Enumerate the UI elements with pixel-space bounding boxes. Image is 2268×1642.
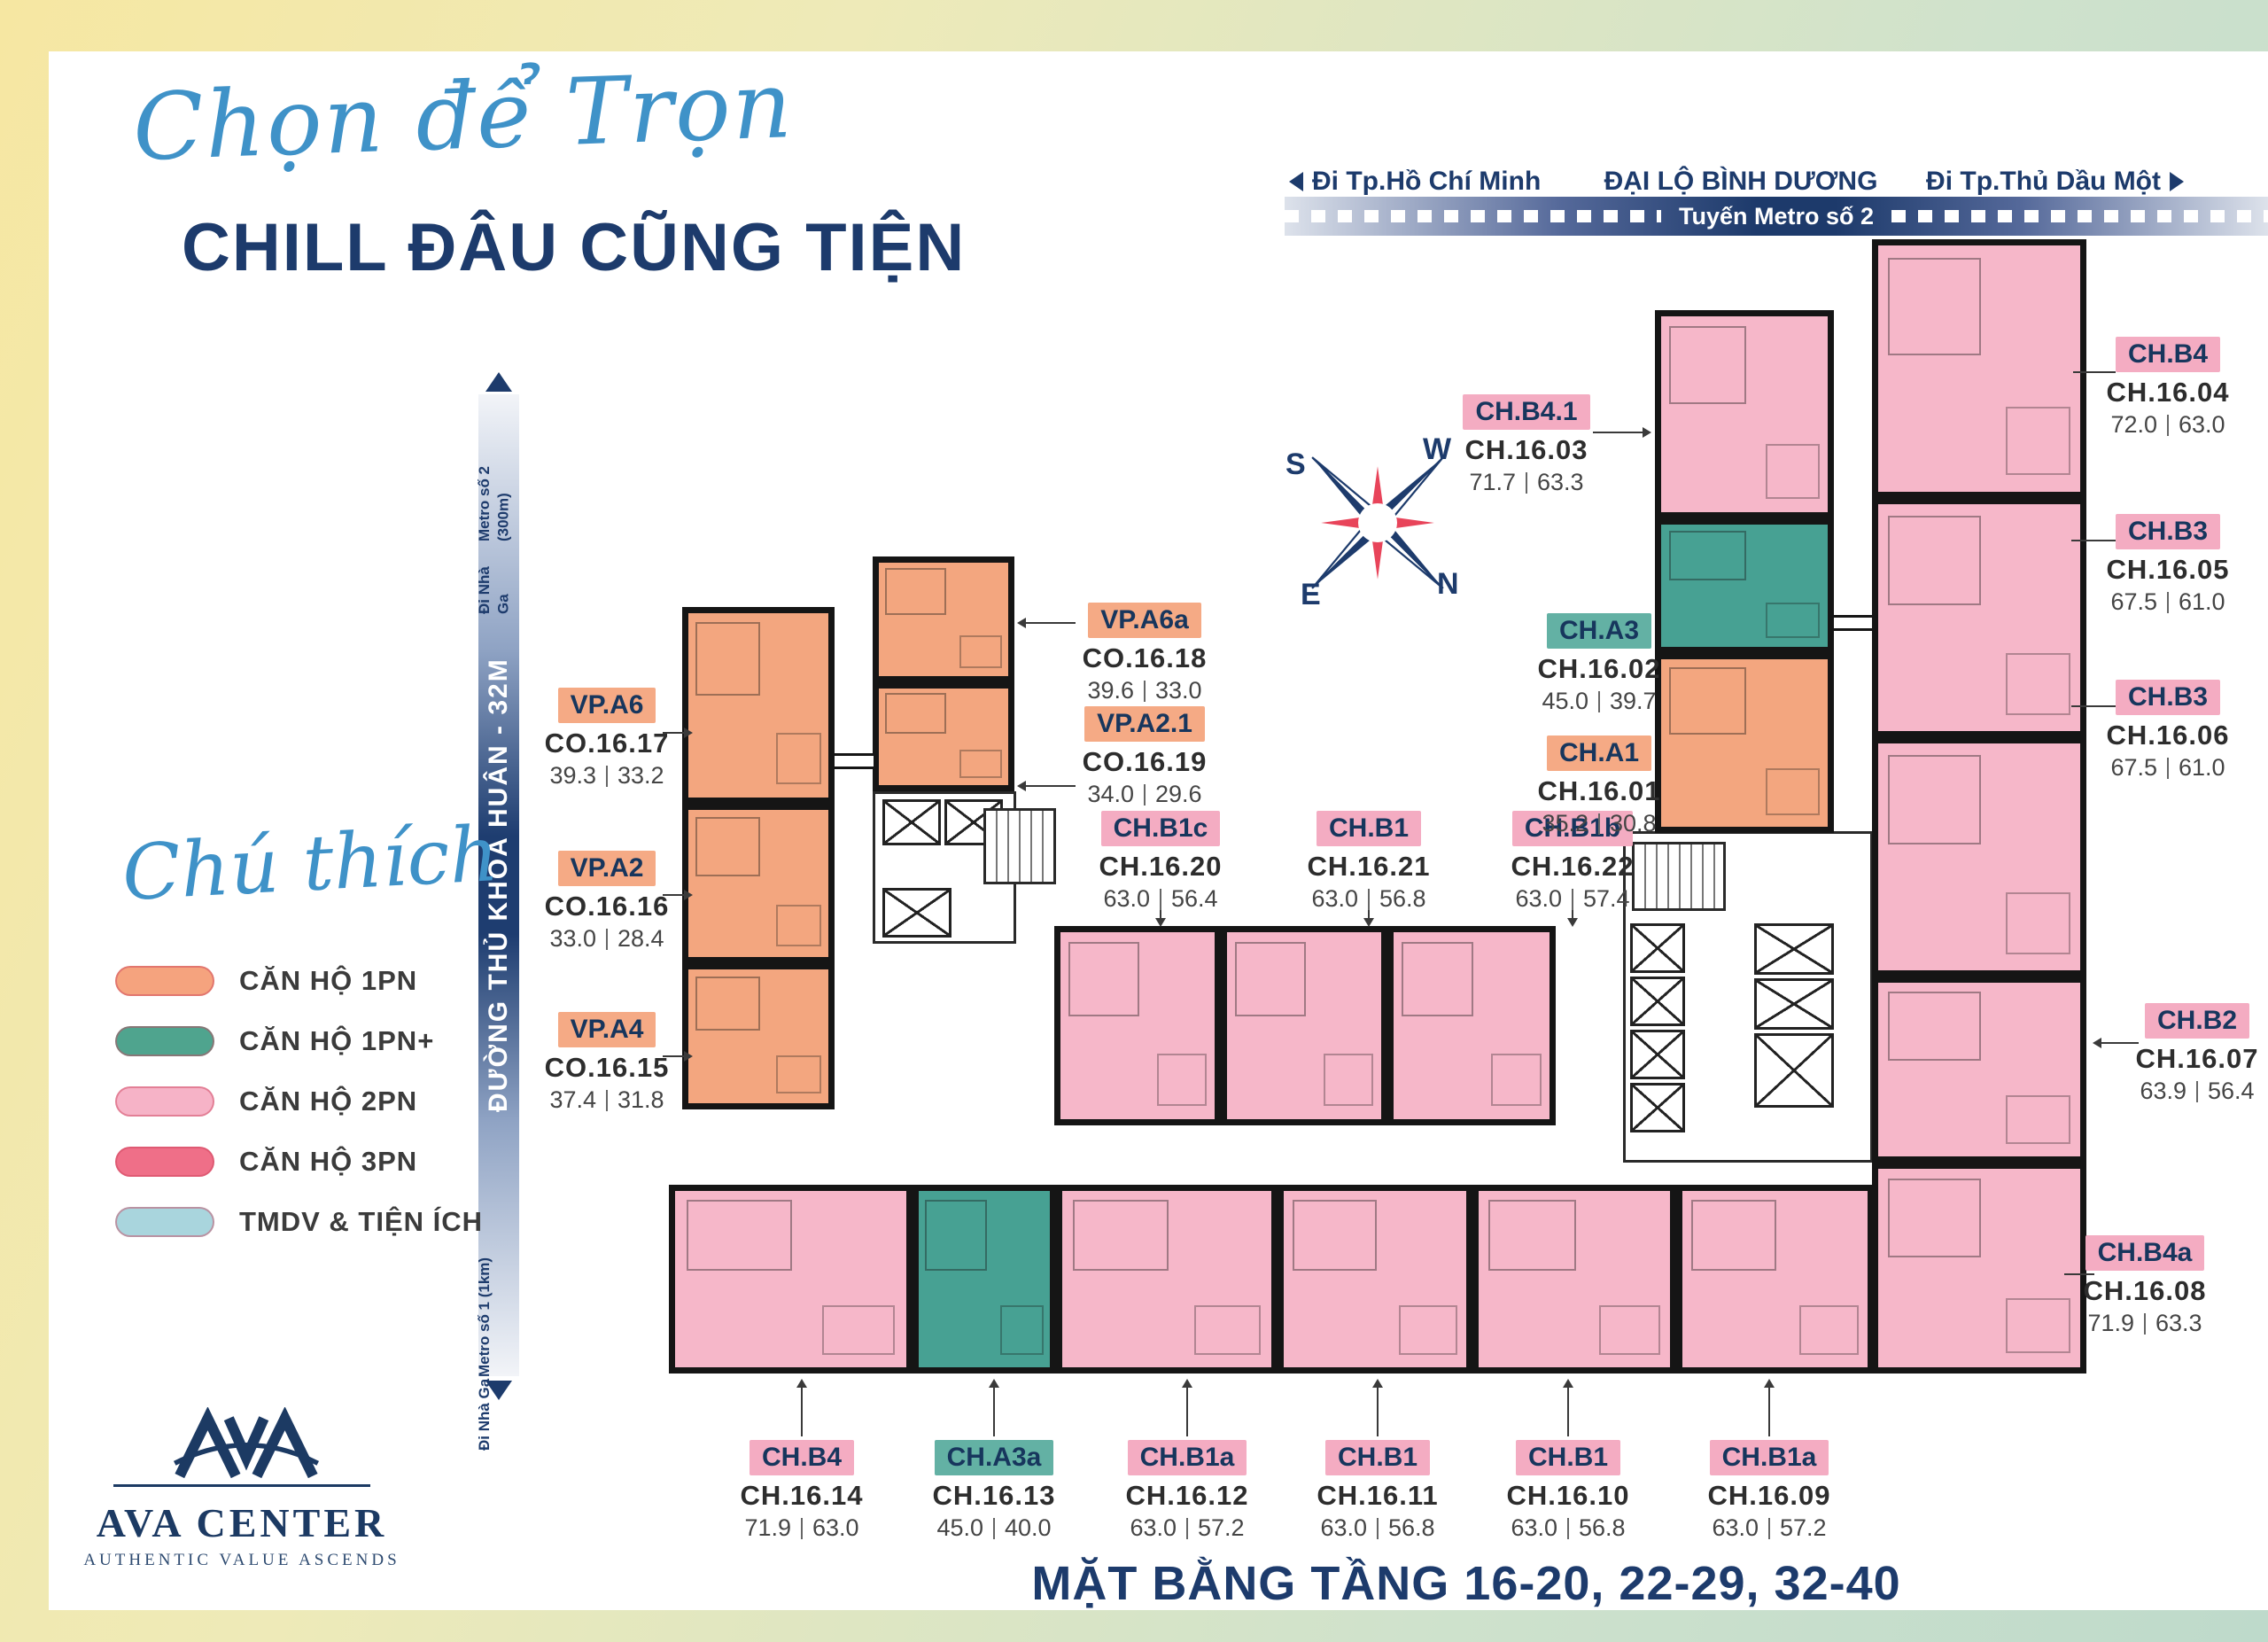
unit-callout: CH.B4CH.16.1471.963.0 bbox=[726, 1440, 877, 1542]
unit-tag: VP.A2 bbox=[558, 851, 656, 886]
unit-tag: CH.B4 bbox=[750, 1440, 854, 1475]
compass-west: W bbox=[1423, 432, 1451, 467]
unit-code: CO.16.16 bbox=[532, 891, 682, 922]
unit-tag: CH.B1 bbox=[1516, 1440, 1620, 1475]
unit-callout: CH.B1CH.16.2163.056.8 bbox=[1293, 811, 1444, 913]
street-dest-bottom: Đi Nhà Ga Metro số 1 (1km) bbox=[475, 1251, 528, 1451]
area-divider bbox=[1567, 1518, 1569, 1539]
unit-code: CH.16.12 bbox=[1112, 1480, 1262, 1512]
legend-label: CĂN HỘ 1PN+ bbox=[239, 1025, 434, 1057]
logo-divider bbox=[113, 1484, 370, 1487]
unit-area-gross: 63.0 bbox=[1515, 885, 1562, 913]
unit-block-co1615 bbox=[682, 963, 835, 1109]
script-title: Chọn để Trọn bbox=[131, 51, 795, 182]
unit-area-gross: 72.0 bbox=[2110, 411, 2157, 439]
unit-area-gross: 39.6 bbox=[1087, 677, 1134, 704]
unit-area-net: 63.3 bbox=[2155, 1310, 2202, 1337]
unit-block-ch1610 bbox=[1472, 1185, 1676, 1374]
area-divider bbox=[606, 929, 608, 950]
unit-code: CH.16.03 bbox=[1451, 434, 1602, 466]
road-direction-right-label: Đi Tp.Thủ Dầu Một bbox=[1926, 167, 2161, 196]
elevator-icon bbox=[882, 888, 951, 938]
unit-tag: CH.A3a bbox=[935, 1440, 1054, 1475]
unit-tag: CH.B4.1 bbox=[1463, 394, 1589, 430]
area-divider bbox=[606, 1090, 608, 1111]
unit-area-net: 63.0 bbox=[2179, 411, 2225, 439]
unit-area-net: 61.0 bbox=[2179, 588, 2225, 616]
callout-arrow bbox=[1377, 1388, 1379, 1436]
unit-block-co1616 bbox=[682, 804, 835, 963]
unit-tag: CH.B1 bbox=[1325, 1440, 1430, 1475]
compass-east: E bbox=[1301, 578, 1321, 612]
legend-swatch-2pn bbox=[115, 1086, 214, 1117]
area-divider bbox=[1598, 813, 1600, 835]
unit-callout: CH.A3CH.16.0245.039.7 bbox=[1524, 613, 1674, 715]
unit-code: CH.16.13 bbox=[919, 1480, 1069, 1512]
unit-block-ch1602 bbox=[1655, 518, 1834, 653]
unit-callout: CH.B1cCH.16.2063.056.4 bbox=[1085, 811, 1236, 913]
area-divider bbox=[1377, 1518, 1379, 1539]
unit-area-gross: 37.4 bbox=[549, 1086, 596, 1114]
unit-callout: VP.A2.1CO.16.1934.029.6 bbox=[1069, 706, 1220, 808]
legend-item: CĂN HỘ 1PN bbox=[115, 966, 417, 996]
unit-code: CO.16.15 bbox=[532, 1052, 682, 1084]
unit-area: 63.056.4 bbox=[1085, 885, 1236, 913]
unit-block-ch1609 bbox=[1676, 1185, 1874, 1374]
legend-label: CĂN HỘ 3PN bbox=[239, 1146, 417, 1178]
unit-area-net: 30.8 bbox=[1610, 810, 1657, 837]
arrow-down-icon bbox=[485, 1381, 512, 1400]
unit-callout: VP.A6CO.16.1739.333.2 bbox=[532, 688, 682, 790]
unit-area: 63.056.8 bbox=[1493, 1514, 1643, 1542]
elevator-icon bbox=[1630, 923, 1685, 973]
unit-area-net: 56.4 bbox=[1171, 885, 1218, 913]
unit-area: 39.333.2 bbox=[532, 762, 682, 790]
unit-area-gross: 71.9 bbox=[744, 1514, 791, 1542]
unit-block-ch1622 bbox=[1387, 926, 1556, 1125]
area-divider bbox=[1186, 1518, 1188, 1539]
unit-block-ch1605 bbox=[1872, 498, 2086, 737]
unit-callout: CH.B3CH.16.0667.561.0 bbox=[2093, 680, 2243, 782]
unit-area: 63.056.8 bbox=[1302, 1514, 1453, 1542]
elevator-icon bbox=[1630, 1083, 1685, 1132]
unit-callout: CH.B4.1CH.16.0371.763.3 bbox=[1451, 394, 1602, 496]
unit-tag: CH.B1a bbox=[1128, 1440, 1247, 1475]
unit-area-net: 56.8 bbox=[1579, 1514, 1626, 1542]
area-divider bbox=[801, 1518, 803, 1539]
unit-area-net: 39.7 bbox=[1610, 688, 1657, 715]
unit-tag: CH.A1 bbox=[1547, 735, 1651, 771]
unit-area: 45.039.7 bbox=[1524, 688, 1674, 715]
unit-area-gross: 63.0 bbox=[1320, 1514, 1367, 1542]
metro-dashes bbox=[1285, 210, 1661, 222]
unit-tag: CH.B4 bbox=[2116, 337, 2220, 372]
unit-tag: CH.B1a bbox=[1710, 1440, 1829, 1475]
unit-area-net: 63.3 bbox=[1537, 469, 1584, 496]
unit-area-gross: 63.0 bbox=[1511, 1514, 1557, 1542]
unit-block-co1617 bbox=[682, 607, 835, 804]
area-divider bbox=[2196, 1081, 2198, 1102]
unit-area-gross: 45.0 bbox=[936, 1514, 983, 1542]
area-divider bbox=[2144, 1313, 2146, 1335]
callout-arrow bbox=[1026, 622, 1076, 624]
unit-area-gross: 71.7 bbox=[1469, 469, 1516, 496]
unit-tag: CH.B3 bbox=[2116, 514, 2220, 549]
unit-block-ch1604 bbox=[1872, 239, 2086, 498]
legend-label: CĂN HỘ 2PN bbox=[239, 1086, 417, 1117]
unit-code: CO.16.19 bbox=[1069, 746, 1220, 778]
bridge-link bbox=[1834, 615, 1873, 631]
callout-arrow bbox=[993, 1388, 995, 1436]
compass-south: S bbox=[1285, 447, 1306, 482]
unit-code: CH.16.02 bbox=[1524, 653, 1674, 685]
unit-area-net: 33.2 bbox=[617, 762, 664, 790]
unit-area-gross: 63.9 bbox=[2140, 1078, 2186, 1105]
area-divider bbox=[1144, 681, 1146, 702]
area-divider bbox=[1598, 691, 1600, 712]
legend-item: CĂN HỘ 2PN bbox=[115, 1086, 417, 1117]
road-direction-left-label: Đi Tp.Hồ Chí Minh bbox=[1312, 167, 1541, 196]
unit-code: CH.16.10 bbox=[1493, 1480, 1643, 1512]
unit-code: CH.16.21 bbox=[1293, 851, 1444, 883]
elevator-icon bbox=[1754, 978, 1834, 1030]
logo-tagline: AUTHENTIC VALUE ASCENDS bbox=[83, 1551, 400, 1570]
elevator-icon bbox=[1754, 923, 1834, 975]
unit-area-gross: 33.0 bbox=[549, 925, 596, 953]
road-direction-right: Đi Tp.Thủ Dầu Một bbox=[1926, 167, 2184, 197]
elevator-icon bbox=[1630, 977, 1685, 1026]
unit-block-co1618 bbox=[873, 556, 1014, 682]
callout-arrow bbox=[1186, 1388, 1188, 1436]
unit-block-co1619 bbox=[873, 682, 1014, 791]
unit-area: 72.063.0 bbox=[2093, 411, 2243, 439]
unit-code: CH.16.22 bbox=[1497, 851, 1648, 883]
floorplan-title: MẶT BẰNG TẦNG 16-20, 22-29, 32-40 bbox=[1031, 1556, 1900, 1611]
unit-callout: CH.A1CH.16.0135.230.8 bbox=[1524, 735, 1674, 837]
unit-tag: CH.B1 bbox=[1317, 811, 1421, 846]
unit-area-gross: 39.3 bbox=[549, 762, 596, 790]
metro-dashes bbox=[1891, 210, 2268, 222]
unit-callout: CH.B1aCH.16.0963.057.2 bbox=[1694, 1440, 1845, 1542]
unit-area-net: 56.8 bbox=[1379, 885, 1426, 913]
unit-area: 34.029.6 bbox=[1069, 781, 1220, 808]
unit-area: 71.963.3 bbox=[2070, 1310, 2220, 1337]
unit-tag: VP.A4 bbox=[558, 1012, 656, 1047]
legend-swatch-1pn bbox=[115, 966, 214, 996]
unit-callout: CH.B4CH.16.0472.063.0 bbox=[2093, 337, 2243, 439]
unit-code: CH.16.01 bbox=[1524, 775, 1674, 807]
unit-area-net: 31.8 bbox=[617, 1086, 664, 1114]
unit-area-net: 63.0 bbox=[812, 1514, 859, 1542]
unit-code: CO.16.17 bbox=[532, 728, 682, 759]
arrow-up-icon bbox=[485, 372, 512, 392]
unit-area-net: 57.4 bbox=[1583, 885, 1630, 913]
logo-name: AVA CENTER bbox=[97, 1499, 387, 1546]
unit-area: 33.028.4 bbox=[532, 925, 682, 953]
stairs-icon bbox=[983, 808, 1056, 884]
callout-arrow bbox=[801, 1388, 803, 1436]
unit-block-ch1607 bbox=[1872, 977, 2086, 1163]
unit-code: CH.16.20 bbox=[1085, 851, 1236, 883]
unit-tag: VP.A6a bbox=[1088, 603, 1201, 638]
unit-area: 67.561.0 bbox=[2093, 588, 2243, 616]
metro-line-label: Tuyến Metro số 2 bbox=[1679, 203, 1874, 230]
unit-block-ch1614 bbox=[669, 1185, 913, 1374]
street-dest-top-line1: Đi Nhà Ga bbox=[475, 543, 528, 614]
street-dest-top-line2: Metro số 2 (300m) bbox=[475, 415, 528, 541]
unit-area-net: 61.0 bbox=[2179, 754, 2225, 782]
ava-logo-icon bbox=[149, 1407, 344, 1491]
legend-label: CĂN HỘ 1PN bbox=[239, 965, 417, 997]
unit-tag: VP.A2.1 bbox=[1084, 706, 1205, 742]
unit-block-ch1601 bbox=[1655, 653, 1834, 833]
legend-item: TMDV & TIỆN ÍCH bbox=[115, 1207, 483, 1237]
unit-area: 63.057.2 bbox=[1694, 1514, 1845, 1542]
unit-area-gross: 67.5 bbox=[2110, 754, 2157, 782]
area-divider bbox=[2167, 758, 2169, 779]
unit-code: CH.16.11 bbox=[1302, 1480, 1453, 1512]
unit-area-net: 56.4 bbox=[2208, 1078, 2255, 1105]
elevator-icon bbox=[1630, 1030, 1685, 1079]
unit-code: CH.16.04 bbox=[2093, 377, 2243, 409]
unit-block-ch1621 bbox=[1221, 926, 1387, 1125]
area-divider bbox=[1160, 889, 1161, 910]
unit-tag: CH.B4a bbox=[2085, 1235, 2205, 1271]
area-divider bbox=[606, 766, 608, 787]
page-title: CHILL ĐÂU CŨNG TIỆN bbox=[182, 209, 966, 286]
unit-code: CH.16.08 bbox=[2070, 1275, 2220, 1307]
unit-area-net: 40.0 bbox=[1005, 1514, 1052, 1542]
unit-code: CH.16.09 bbox=[1694, 1480, 1845, 1512]
unit-area-gross: 63.0 bbox=[1130, 1514, 1177, 1542]
unit-area: 63.956.4 bbox=[2122, 1078, 2268, 1105]
unit-area-gross: 34.0 bbox=[1087, 781, 1134, 808]
elevator-icon bbox=[1754, 1033, 1834, 1108]
unit-area: 63.056.8 bbox=[1293, 885, 1444, 913]
unit-callout: CH.B1CH.16.1163.056.8 bbox=[1302, 1440, 1453, 1542]
unit-block-ch1606 bbox=[1872, 737, 2086, 977]
unit-block-ch1608 bbox=[1872, 1163, 2086, 1374]
area-divider bbox=[1144, 784, 1146, 805]
road-direction-left: Đi Tp.Hồ Chí Minh bbox=[1289, 167, 1541, 197]
unit-code: CH.16.06 bbox=[2093, 720, 2243, 751]
area-divider bbox=[1368, 889, 1370, 910]
elevator-icon bbox=[882, 799, 941, 845]
unit-block-ch1620 bbox=[1054, 926, 1221, 1125]
unit-area: 39.633.0 bbox=[1069, 677, 1220, 704]
street-dest-top: Đi Nhà Ga Metro số 2 (300m) bbox=[475, 415, 528, 614]
unit-area-gross: 35.2 bbox=[1542, 810, 1588, 837]
unit-callout: CH.B1CH.16.1063.056.8 bbox=[1493, 1440, 1643, 1542]
unit-area-gross: 71.9 bbox=[2087, 1310, 2134, 1337]
street-dest-bottom-line2: Metro số 1 (1km) bbox=[475, 1257, 528, 1377]
unit-area: 71.963.0 bbox=[726, 1514, 877, 1542]
unit-area: 35.230.8 bbox=[1524, 810, 1674, 837]
unit-code: CH.16.05 bbox=[2093, 554, 2243, 586]
unit-area: 45.040.0 bbox=[919, 1514, 1069, 1542]
unit-area-net: 57.2 bbox=[1198, 1514, 1245, 1542]
callout-arrow bbox=[1567, 1388, 1569, 1436]
legend-swatch-3pn bbox=[115, 1147, 214, 1177]
unit-area: 67.561.0 bbox=[2093, 754, 2243, 782]
unit-tag: CH.B2 bbox=[2145, 1003, 2249, 1039]
unit-area: 71.763.3 bbox=[1451, 469, 1602, 496]
unit-code: CO.16.18 bbox=[1069, 642, 1220, 674]
unit-callout: CH.B1aCH.16.1263.057.2 bbox=[1112, 1440, 1262, 1542]
metro-line-bar: Tuyến Metro số 2 bbox=[1285, 197, 2268, 236]
unit-area-net: 29.6 bbox=[1155, 781, 1202, 808]
compass-north: N bbox=[1437, 567, 1459, 602]
poster: Chọn để Trọn CHILL ĐÂU CŨNG TIỆN Đi Tp.H… bbox=[0, 0, 2268, 1642]
unit-callout: VP.A2CO.16.1633.028.4 bbox=[532, 851, 682, 953]
unit-block-ch1611 bbox=[1278, 1185, 1472, 1374]
unit-tag: VP.A6 bbox=[558, 688, 656, 723]
unit-tag: CH.B1c bbox=[1101, 811, 1221, 846]
road-name-top: ĐẠI LỘ BÌNH DƯƠNG bbox=[1604, 167, 1878, 197]
unit-tag: CH.B3 bbox=[2116, 680, 2220, 715]
unit-area-net: 56.8 bbox=[1388, 1514, 1435, 1542]
unit-code: CH.16.14 bbox=[726, 1480, 877, 1512]
arrow-right-icon bbox=[2170, 172, 2184, 191]
unit-area-gross: 63.0 bbox=[1103, 885, 1150, 913]
area-divider bbox=[2167, 592, 2169, 613]
unit-block-ch1613 bbox=[913, 1185, 1056, 1374]
unit-area-net: 57.2 bbox=[1780, 1514, 1827, 1542]
legend-swatch-tmdv bbox=[115, 1207, 214, 1237]
unit-callout: VP.A4CO.16.1537.431.8 bbox=[532, 1012, 682, 1114]
unit-area-gross: 45.0 bbox=[1542, 688, 1588, 715]
unit-callout: CH.B4aCH.16.0871.963.3 bbox=[2070, 1235, 2220, 1337]
area-divider bbox=[993, 1518, 995, 1539]
area-divider bbox=[1572, 889, 1573, 910]
unit-area: 63.057.2 bbox=[1112, 1514, 1262, 1542]
callout-arrow bbox=[1026, 785, 1076, 787]
area-divider bbox=[1526, 472, 1527, 494]
unit-area-net: 33.0 bbox=[1155, 677, 1202, 704]
legend-label: TMDV & TIỆN ÍCH bbox=[239, 1206, 483, 1238]
unit-callout: VP.A6aCO.16.1839.633.0 bbox=[1069, 603, 1220, 704]
unit-area-gross: 67.5 bbox=[2110, 588, 2157, 616]
bridge-link bbox=[835, 753, 874, 769]
unit-tag: CH.A3 bbox=[1547, 613, 1651, 649]
legend-item: CĂN HỘ 1PN+ bbox=[115, 1026, 434, 1056]
legend-item: CĂN HỘ 3PN bbox=[115, 1147, 417, 1177]
unit-callout: CH.A3aCH.16.1345.040.0 bbox=[919, 1440, 1069, 1542]
unit-callout: CH.B2CH.16.0763.956.4 bbox=[2122, 1003, 2268, 1105]
unit-area: 63.057.4 bbox=[1497, 885, 1648, 913]
unit-code: CH.16.07 bbox=[2122, 1043, 2268, 1075]
unit-area: 37.431.8 bbox=[532, 1086, 682, 1114]
unit-callout: CH.B3CH.16.0567.561.0 bbox=[2093, 514, 2243, 616]
area-divider bbox=[2167, 415, 2169, 436]
unit-area-net: 28.4 bbox=[617, 925, 664, 953]
arrow-left-icon bbox=[1289, 172, 1303, 191]
area-divider bbox=[1768, 1518, 1770, 1539]
legend-swatch-1pn-plus bbox=[115, 1026, 214, 1056]
unit-block-ch1603 bbox=[1655, 310, 1834, 518]
unit-area-gross: 63.0 bbox=[1311, 885, 1358, 913]
unit-area-gross: 63.0 bbox=[1712, 1514, 1759, 1542]
callout-arrow bbox=[1768, 1388, 1770, 1436]
unit-block-ch1612 bbox=[1056, 1185, 1278, 1374]
